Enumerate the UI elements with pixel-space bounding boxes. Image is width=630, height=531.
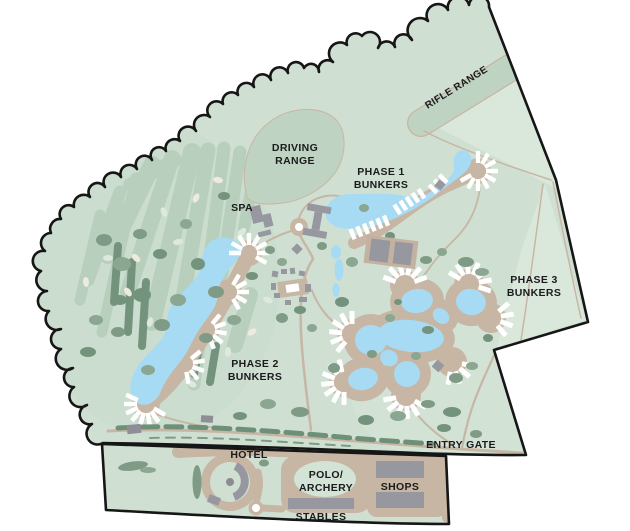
label-phase3-line2: BUNKERS xyxy=(507,287,561,299)
label-spa: SPA xyxy=(231,202,253,214)
label-phase2-line2: BUNKERS xyxy=(228,371,282,383)
hotel-center xyxy=(226,478,234,486)
label-polo-line1: POLO/ xyxy=(309,469,343,481)
resort-map-svg: RIFLE RANGE DRIVING RANGE SPA PHASE 1 BU… xyxy=(0,0,630,531)
label-phase3-line1: PHASE 3 xyxy=(510,274,557,286)
label-phase1-line1: PHASE 1 xyxy=(357,166,404,178)
label-phase2-line1: PHASE 2 xyxy=(231,358,278,370)
label-phase1-line2: BUNKERS xyxy=(354,179,408,191)
label-driving-range-line1: DRIVING xyxy=(272,142,318,154)
label-hotel: HOTEL xyxy=(230,449,268,461)
shops-building-south xyxy=(376,492,424,508)
label-stables: STABLES xyxy=(296,511,347,523)
label-entry-gate: ENTRY GATE xyxy=(426,439,496,451)
map-canvas: RIFLE RANGE DRIVING RANGE SPA PHASE 1 BU… xyxy=(0,0,630,531)
stables-building xyxy=(288,498,354,509)
label-driving-range-line2: RANGE xyxy=(275,155,315,167)
shops-building-north xyxy=(376,461,424,478)
label-shops: SHOPS xyxy=(381,481,420,493)
main-parcel xyxy=(30,0,590,470)
maintenance-shed-2 xyxy=(201,415,213,423)
label-polo-line2: ARCHERY xyxy=(299,482,353,494)
maintenance-shed-1 xyxy=(127,424,142,434)
